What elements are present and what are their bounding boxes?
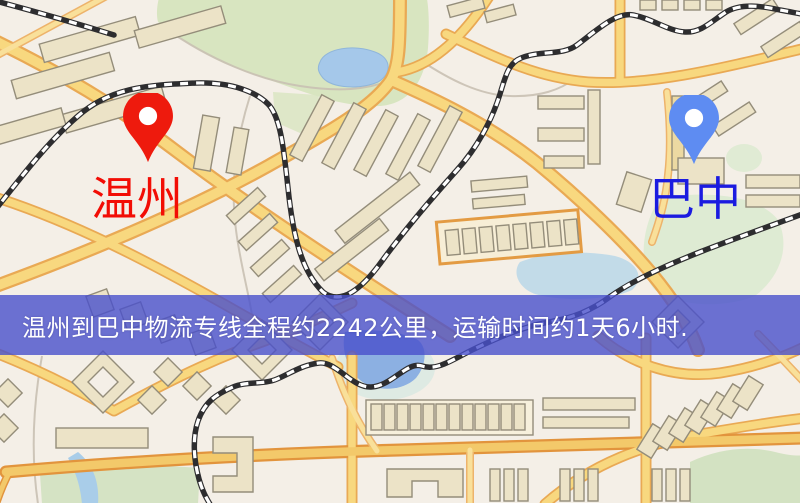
- map-pin-icon: [123, 93, 173, 166]
- logistics-route-map: 温州到巴中物流专线全程约2242公里，运输时间约1天6小时. 温州 巴中: [0, 0, 800, 503]
- destination-marker-pin[interactable]: [669, 95, 719, 168]
- origin-marker-pin[interactable]: [123, 93, 173, 166]
- route-info-text: 温州到巴中物流专线全程约2242公里，运输时间约1天6小时.: [0, 295, 800, 355]
- origin-city-label: 温州: [91, 176, 183, 222]
- route-info-banner: 温州到巴中物流专线全程约2242公里，运输时间约1天6小时.: [0, 295, 800, 355]
- map-pin-icon: [669, 95, 719, 168]
- map-canvas: [0, 0, 800, 503]
- destination-pin-hole: [685, 109, 703, 127]
- destination-city-label: 巴中: [649, 176, 741, 222]
- origin-pin-shape: [123, 93, 173, 162]
- destination-pin-shape: [669, 95, 719, 164]
- origin-pin-hole: [139, 107, 157, 125]
